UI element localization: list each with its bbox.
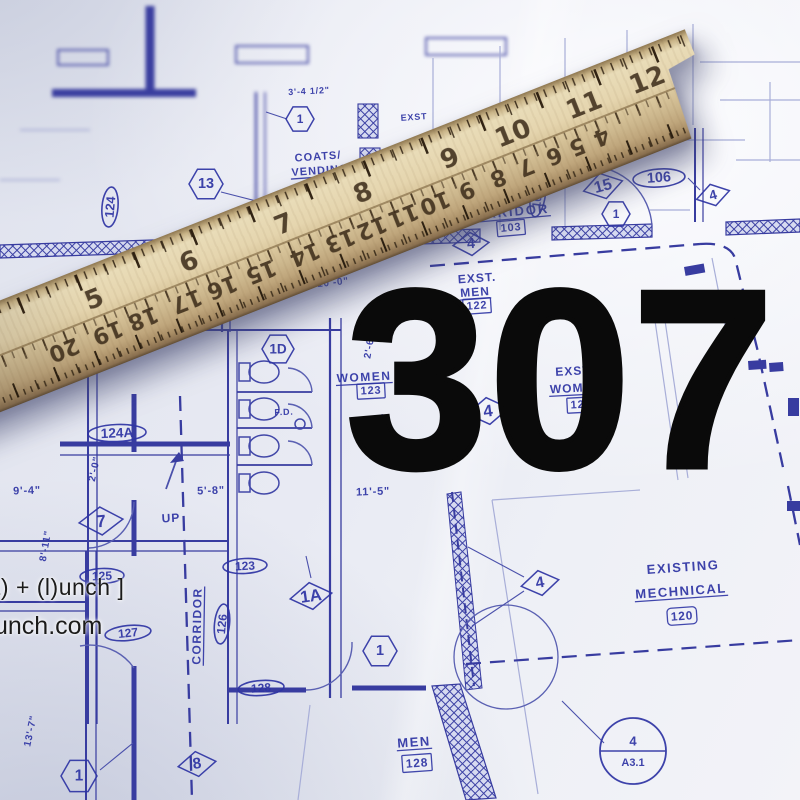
dim-8-11: 8'-11" xyxy=(38,530,54,563)
keynote-7: 7 xyxy=(78,505,124,537)
num-mech-120: 120 xyxy=(667,606,698,625)
svg-text:128: 128 xyxy=(251,680,272,695)
svg-text:4: 4 xyxy=(534,574,546,592)
svg-text:CORRIDOR: CORRIDOR xyxy=(189,587,204,665)
svg-text:9'-4": 9'-4" xyxy=(13,485,41,498)
svg-text:4: 4 xyxy=(707,187,719,204)
svg-text:103: 103 xyxy=(500,221,522,235)
svg-text:1: 1 xyxy=(297,112,304,126)
svg-text:4: 4 xyxy=(629,734,637,749)
svg-text:120: 120 xyxy=(670,608,693,624)
svg-text:106: 106 xyxy=(646,169,671,187)
keynote-4-b: 4 xyxy=(519,567,561,598)
doortag-1-top: 1 xyxy=(286,107,314,131)
svg-text:5'-8": 5'-8" xyxy=(197,485,225,498)
dim-2-0: 2'-0" xyxy=(87,455,103,482)
keynote-4-a: 4 xyxy=(694,180,733,210)
svg-text:126: 126 xyxy=(214,613,230,635)
keynote-1A: 1A xyxy=(288,580,333,613)
doortag-13: 13 xyxy=(189,169,223,199)
svg-text:8'-11": 8'-11" xyxy=(38,530,54,563)
svg-text:1: 1 xyxy=(75,768,84,785)
svg-text:124: 124 xyxy=(102,195,119,218)
label-existing: EXISTING xyxy=(646,557,720,577)
label-coats: COATS/ xyxy=(294,149,341,164)
section-marker-A31: A3.14 xyxy=(600,718,666,784)
dim-9-4: 9'-4" xyxy=(13,485,41,498)
svg-text:3'-4 1/2": 3'-4 1/2" xyxy=(288,85,330,97)
svg-text:1D: 1D xyxy=(269,342,287,357)
ruler-number-8: 8 xyxy=(349,176,377,211)
ruler-number-6: 6 xyxy=(175,245,203,280)
ruler-number-9: 9 xyxy=(436,142,464,177)
svg-text:1: 1 xyxy=(376,643,384,659)
blueprint-photo: 124124A125123127126128106106A154444871A1… xyxy=(0,0,800,800)
big-number-overlay: 307 xyxy=(346,287,776,472)
keynote-8: 8 xyxy=(176,749,217,779)
svg-text:13: 13 xyxy=(198,176,214,192)
watermark-line2: unch.com xyxy=(0,612,124,641)
label-men-128: MEN xyxy=(396,733,432,750)
ruler-number-7: 7 xyxy=(270,207,298,242)
svg-text:124A: 124A xyxy=(100,425,133,441)
room-tag-106: 106 xyxy=(632,167,685,189)
svg-text:COATS/: COATS/ xyxy=(294,149,341,164)
room-tag-123: 123 xyxy=(223,557,268,574)
label-corridor-126: CORRIDOR xyxy=(189,586,204,666)
watermark: t) + (l)unch ] unch.com xyxy=(0,574,124,641)
dim-3-4-half: 3'-4 1/2" xyxy=(288,85,330,97)
num-corridor-103: 103 xyxy=(497,219,526,236)
ruler-number-5: 5 xyxy=(80,282,108,317)
dim-5-8: 5'-8" xyxy=(197,485,225,498)
watermark-line1: t) + (l)unch ] xyxy=(0,574,124,601)
svg-text:UP: UP xyxy=(161,511,180,526)
num-men-128: 128 xyxy=(402,753,433,772)
label-mechnical: MECHNICAL xyxy=(634,580,728,601)
svg-text:1: 1 xyxy=(613,207,620,221)
svg-text:A3.1: A3.1 xyxy=(621,757,644,769)
svg-text:13'-7": 13'-7" xyxy=(22,714,39,748)
doortag-1-bl: 1 xyxy=(61,760,97,791)
svg-text:8: 8 xyxy=(192,755,203,773)
svg-text:EXISTING: EXISTING xyxy=(646,557,720,577)
svg-text:1A: 1A xyxy=(299,585,323,607)
svg-text:7: 7 xyxy=(95,511,106,532)
room-tag-124: 124 xyxy=(100,186,119,227)
svg-text:2'-0": 2'-0" xyxy=(87,455,103,482)
svg-text:123: 123 xyxy=(235,558,256,573)
doortag-1-low: 1 xyxy=(363,636,397,666)
svg-text:128: 128 xyxy=(405,755,428,771)
dim-13-7: 13'-7" xyxy=(22,714,39,748)
doortag-1-mid: 1 xyxy=(602,202,630,226)
svg-text:EXST: EXST xyxy=(400,111,427,123)
svg-text:F.D.: F.D. xyxy=(274,407,294,418)
doortag-1D: 1D xyxy=(262,335,294,363)
label-exst-small: EXST xyxy=(400,111,427,123)
label-up: UP xyxy=(161,511,180,526)
label-fd: F.D. xyxy=(274,407,294,418)
